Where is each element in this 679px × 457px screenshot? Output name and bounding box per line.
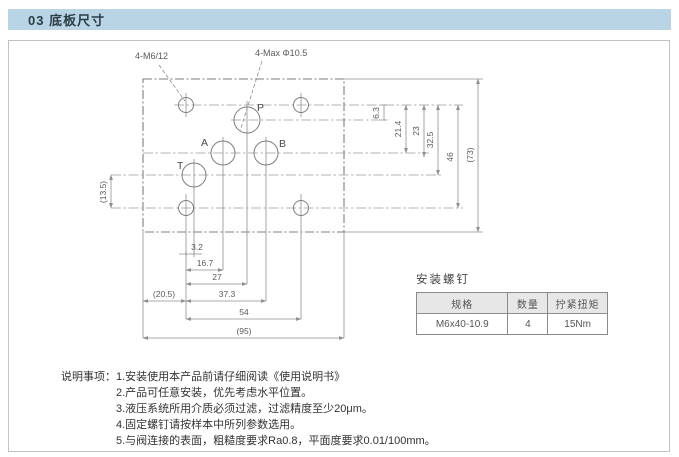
note-item-4: 4.固定螺钉请按样本中所列参数选用。 xyxy=(116,417,436,433)
cell-qty: 4 xyxy=(508,314,548,335)
screw-table-title: 安装螺钉 xyxy=(416,271,612,287)
section-header-bar: 03 底板尺寸 xyxy=(8,9,671,30)
note-item-3: 3.液压系统所用介质必须过滤，过滤精度至少20μm。 xyxy=(116,401,436,417)
notes-section: 说明事项： 1.安装使用本产品前请仔细阅读《使用说明书》 2.产品可任意安装，优… xyxy=(61,369,436,449)
dim-label-95: (95) xyxy=(236,326,251,336)
screw-table-header-row: 规格 数量 拧紧扭矩 xyxy=(417,293,608,314)
port-b-label: B xyxy=(279,138,286,150)
dim-label-27: 27 xyxy=(212,272,222,282)
note-item-1: 1.安装使用本产品前请仔细阅读《使用说明书》 xyxy=(116,369,436,385)
dim-label-23: 23 xyxy=(411,126,421,136)
notes-list: 1.安装使用本产品前请仔细阅读《使用说明书》 2.产品可任意安装，优先考虑水平位… xyxy=(116,369,436,449)
dim-label-46: 46 xyxy=(445,152,455,162)
column-header-qty: 数量 xyxy=(508,293,548,314)
dim-label-32-5: 32.5 xyxy=(425,131,435,148)
note-item-5: 5.与阀连接的表面，粗糙度要求Ra0.8，平面度要求0.01/100mm。 xyxy=(116,433,436,449)
dim-label-13-5: (13.5) xyxy=(98,181,108,203)
page: { "header": { "title": "03 底板尺寸" }, "dra… xyxy=(0,0,679,457)
port-a-label: A xyxy=(201,137,208,149)
cell-spec: M6x40-10.9 xyxy=(417,314,508,335)
note-item-2: 2.产品可任意安装，优先考虑水平位置。 xyxy=(116,385,436,401)
screw-table: 规格 数量 拧紧扭矩 M6x40-10.9 4 15Nm xyxy=(416,292,608,335)
dim-label-3-2: 3.2 xyxy=(191,242,203,252)
content-box: 3.2 16.7 27 (20.5) 37.3 54 (95) 6.3 21.4… xyxy=(8,40,670,452)
mounting-holes xyxy=(179,98,309,216)
page-title: 03 底板尺寸 xyxy=(8,10,105,29)
dim-label-6-3: 6.3 xyxy=(371,107,381,119)
callout-labels: 4-M6/12 4-Max Φ10.5 xyxy=(135,48,307,131)
column-header-torque: 拧紧扭矩 xyxy=(548,293,608,314)
dim-label-73: (73) xyxy=(465,147,475,162)
callout-mounting-thread: 4-M6/12 xyxy=(135,51,168,61)
dim-label-54: 54 xyxy=(239,307,249,317)
callout-max-port-dia: 4-Max Φ10.5 xyxy=(255,48,307,58)
dim-label-37-3: 37.3 xyxy=(219,289,236,299)
cell-torque: 15Nm xyxy=(548,314,608,335)
port-t-label: T xyxy=(177,160,184,172)
dim-label-16-7: 16.7 xyxy=(197,258,214,268)
plate-outline xyxy=(143,79,344,232)
column-header-spec: 规格 xyxy=(417,293,508,314)
screw-table-section: 安装螺钉 规格 数量 拧紧扭矩 M6x40-10.9 4 15Nm xyxy=(416,271,612,335)
dim-label-21-4: 21.4 xyxy=(393,120,403,137)
dim-label-20-5: (20.5) xyxy=(153,289,175,299)
notes-label: 说明事项： xyxy=(61,369,116,449)
centerlines xyxy=(111,79,483,232)
screw-table-row: M6x40-10.9 4 15Nm xyxy=(417,314,608,335)
port-p-label: P xyxy=(257,102,264,114)
